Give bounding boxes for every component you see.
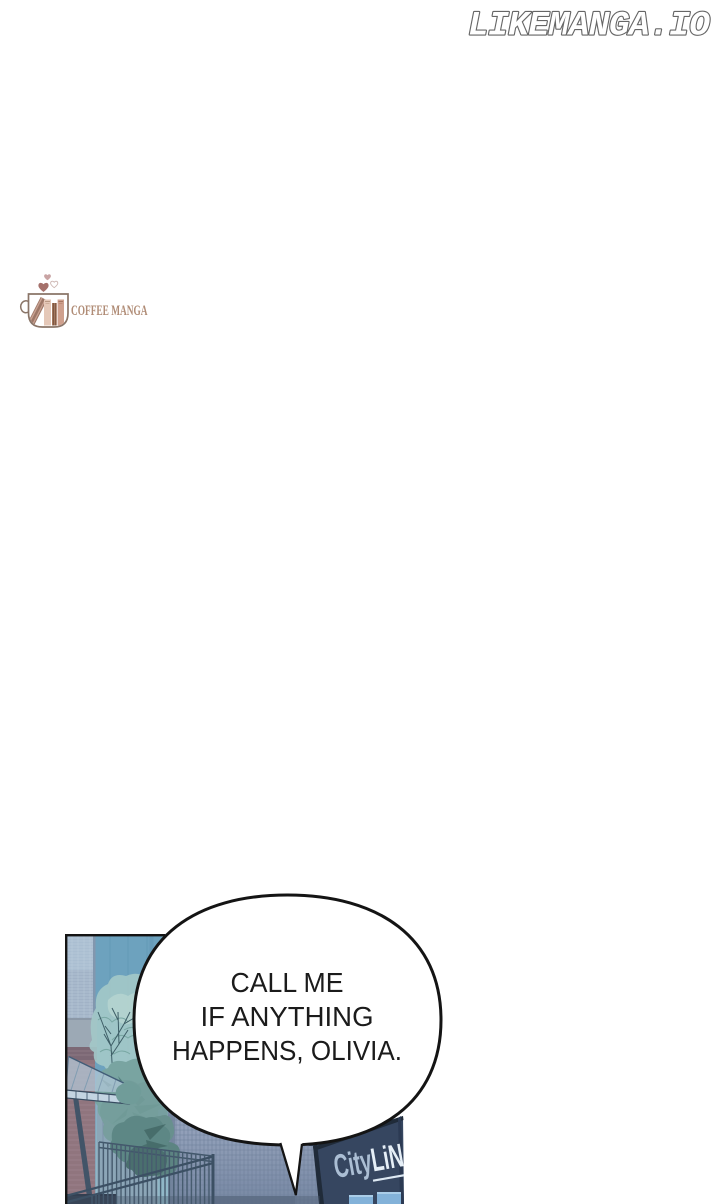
svg-text:IF ANYTHING: IF ANYTHING: [201, 1001, 374, 1032]
svg-text:CALL ME: CALL ME: [231, 967, 344, 998]
svg-text:LIKEMANGA.IO: LIKEMANGA.IO: [468, 6, 710, 45]
svg-text:COFFEE MANGA: COFFEE MANGA: [71, 303, 148, 319]
svg-text:HAPPENS, OLIVIA.: HAPPENS, OLIVIA.: [172, 1035, 402, 1066]
